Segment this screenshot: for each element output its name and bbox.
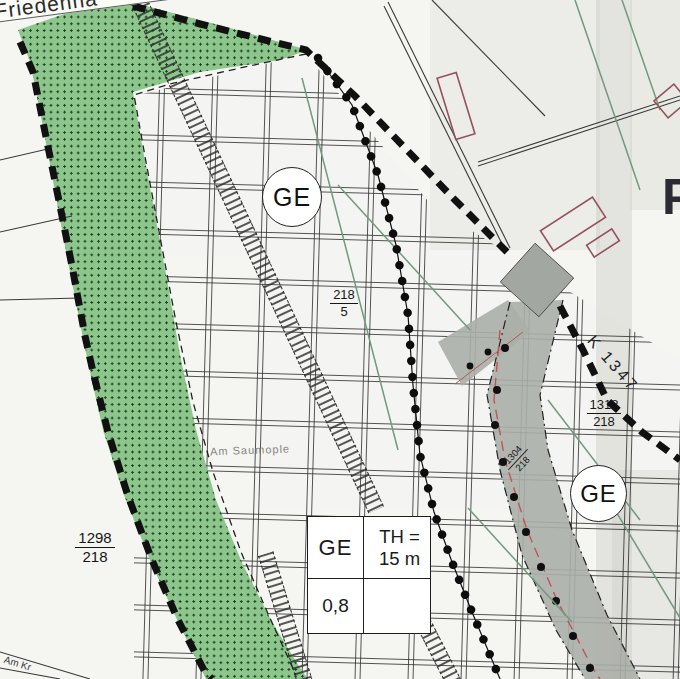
edge-letter: P xyxy=(662,168,680,226)
zone-circle-ge-right: GE xyxy=(570,465,627,522)
building-outlines xyxy=(437,72,680,257)
info-box-th-label: TH = xyxy=(379,526,420,547)
info-box-ratio: 0,8 xyxy=(308,579,364,633)
parcel-number: 1298 218 xyxy=(70,530,120,565)
info-box-th-value: 15 m xyxy=(379,548,420,569)
info-box-height: TH = 15 m xyxy=(364,517,430,579)
zoning-info-box: GE TH = 15 m 0,8 xyxy=(307,516,431,634)
info-box-empty-cell xyxy=(364,579,430,633)
zoning-plan-map: { "streets": { "top": "Friedenha", "bott… xyxy=(0,0,680,679)
info-box-use: GE xyxy=(308,517,364,579)
parcel-number: 218 5 xyxy=(326,288,362,318)
zone-circle-ge-left: GE xyxy=(262,167,322,227)
